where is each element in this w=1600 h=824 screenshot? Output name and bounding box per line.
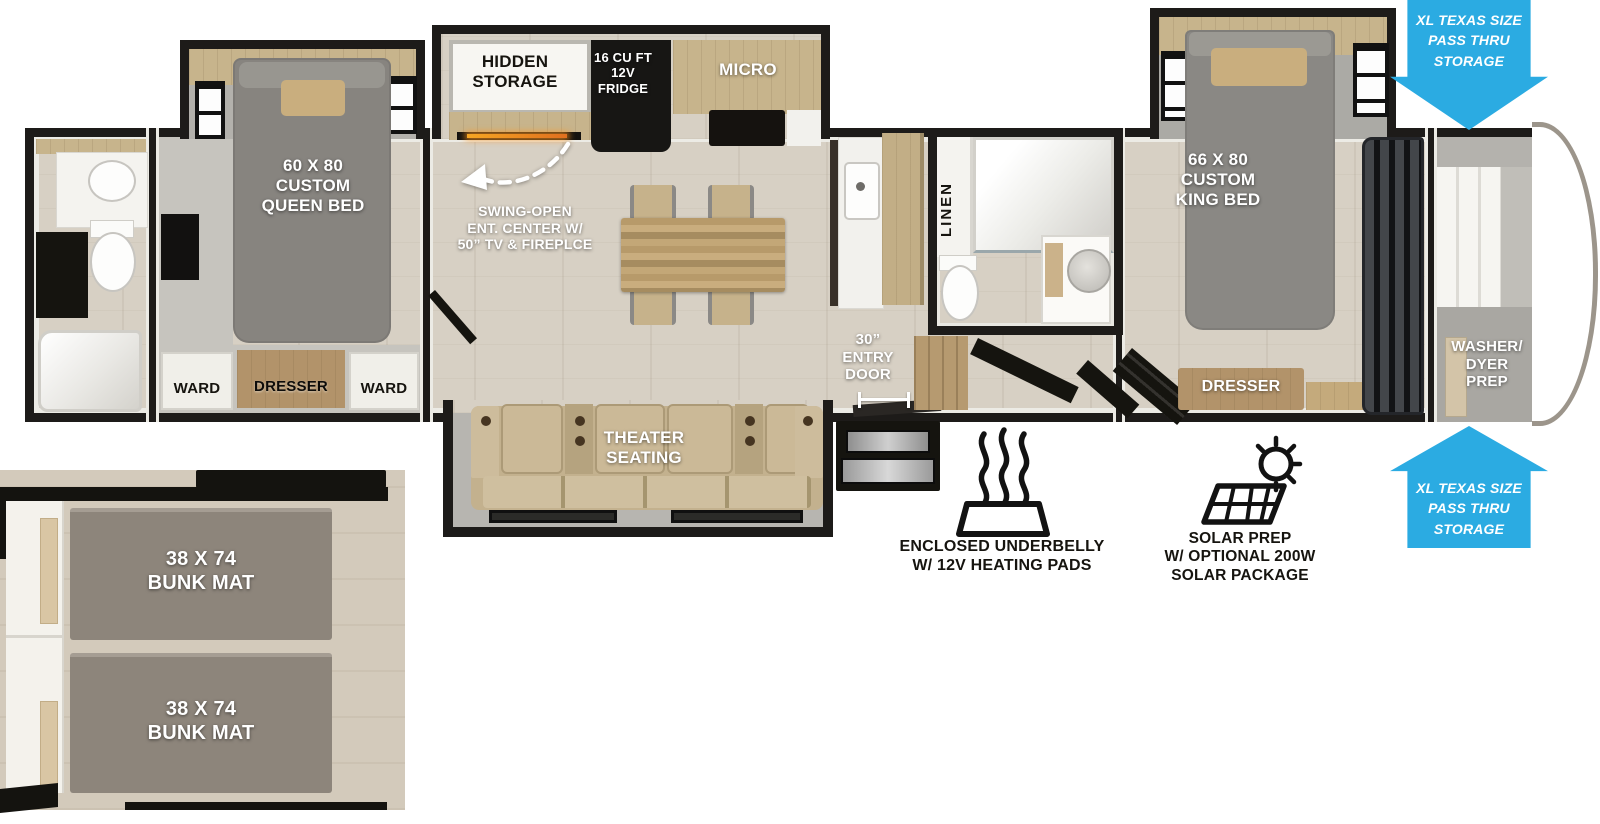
wall-bedroom-living xyxy=(420,128,433,422)
hidden-storage-label: HIDDEN STORAGE xyxy=(446,52,584,92)
cupholder-icon xyxy=(803,416,813,426)
dining-chair xyxy=(630,289,676,325)
theater-seating-label: THEATER SEATING xyxy=(583,428,705,468)
kitchen-sink-drain xyxy=(856,182,865,191)
kitchen-counter-dark-edge xyxy=(830,140,838,306)
bunk-cabinet-seam xyxy=(6,635,62,638)
bunk-mat-top-label: 38 X 74 BUNK MAT xyxy=(70,548,332,595)
entry-door-bracket xyxy=(858,392,910,408)
kitchen-sink xyxy=(844,162,880,220)
pass-thru-top-label: XL TEXAS SIZE PASS THRU STORAGE xyxy=(1390,10,1548,71)
queen-bed-pillow xyxy=(281,80,345,116)
mid-bath-toilet xyxy=(941,265,979,321)
solar-caption: SOLAR PREP W/ OPTIONAL 200W SOLAR PACKAG… xyxy=(1128,530,1352,585)
king-bench xyxy=(1306,382,1370,410)
bunk-cabinet-door xyxy=(40,701,58,795)
bunk-top-frame xyxy=(0,487,388,501)
swing-open-arrow-icon xyxy=(455,138,575,204)
washer-closet-cabinets xyxy=(1437,167,1501,307)
king-bed-pillow xyxy=(1211,48,1307,86)
entry-door-bracket-line xyxy=(861,398,907,401)
queen-ward-left-label: WARD xyxy=(161,380,233,398)
queen-slide-window-right-icon xyxy=(387,76,417,134)
rear-bath-sink xyxy=(88,160,136,202)
bunk-cabinet-column xyxy=(6,501,64,793)
bunk-bottom-frame xyxy=(125,802,387,810)
washer-closet-top-band xyxy=(1437,137,1537,167)
bunk-cabinet-door xyxy=(40,518,58,624)
pass-thru-arrow-down-icon: XL TEXAS SIZE PASS THRU STORAGE xyxy=(1390,0,1548,130)
cupholder-icon xyxy=(481,416,491,426)
entry-door-label: 30” ENTRY DOOR xyxy=(824,331,912,384)
king-wardrobe xyxy=(1362,137,1424,415)
theater-window-icon xyxy=(489,510,617,523)
wall-king-front xyxy=(1425,128,1437,422)
entry-step xyxy=(846,430,930,453)
cooktop xyxy=(709,110,785,146)
mid-bath-door xyxy=(914,336,968,410)
queen-slide-window-left-icon xyxy=(195,81,225,139)
pass-thru-bottom-label: XL TEXAS SIZE PASS THRU STORAGE xyxy=(1390,478,1548,539)
bunk-bottom-left-frame xyxy=(0,783,58,813)
rear-bath-wardrobe xyxy=(36,232,88,318)
rv-floorplan: 60 X 80 CUSTOM QUEEN BED WARD DRESSER WA… xyxy=(0,0,1600,824)
mid-bath-vanity-panel xyxy=(1045,243,1063,297)
bunk-room-inset: 38 X 74 BUNK MAT 38 X 74 BUNK MAT xyxy=(0,470,405,810)
dining-chair xyxy=(708,185,754,221)
pantry-cabinet xyxy=(882,133,924,305)
ent-center-note: SWING-OPEN ENT. CENTER W/ 50” TV & FIREP… xyxy=(436,203,614,253)
queen-bed-label: 60 X 80 CUSTOM QUEEN BED xyxy=(238,156,388,216)
heating-pads-icon xyxy=(942,426,1064,538)
mid-bath-sink-bowl xyxy=(1067,249,1111,293)
king-bed-label: 66 X 80 CUSTOM KING BED xyxy=(1138,150,1298,210)
sofa-seat-row xyxy=(483,476,811,508)
bunk-mat-bottom-label: 38 X 74 BUNK MAT xyxy=(70,698,332,745)
underbelly-caption: ENCLOSED UNDERBELLY W/ 12V HEATING PADS xyxy=(878,538,1126,576)
bunk-countertop xyxy=(196,470,386,488)
cupholder-icon xyxy=(745,436,755,446)
queen-room-tv xyxy=(161,214,199,280)
micro-label: MICRO xyxy=(700,60,796,80)
linen-label: LINEN xyxy=(938,150,964,270)
entry-steps xyxy=(836,421,940,491)
king-slide-window-right-icon xyxy=(1353,43,1389,117)
cupholder-icon xyxy=(745,416,755,426)
kitchen-slide-counter-white xyxy=(787,110,821,146)
queen-dresser-label: DRESSER xyxy=(237,378,345,396)
entry-step xyxy=(841,458,935,484)
dining-chair xyxy=(708,289,754,325)
theater-window-icon xyxy=(671,510,803,523)
washer-dryer-label: WASHER/ DYER PREP xyxy=(1437,338,1537,391)
king-dresser-label: DRESSER xyxy=(1178,378,1304,397)
queen-ward-right-label: WARD xyxy=(349,380,419,398)
solar-prep-icon xyxy=(1188,434,1304,534)
pass-thru-arrow-up-icon: XL TEXAS SIZE PASS THRU STORAGE xyxy=(1390,426,1548,548)
dining-table xyxy=(621,218,785,292)
fridge-label: 16 CU FT 12V FRIDGE xyxy=(584,50,662,96)
rear-bath-toilet xyxy=(90,232,136,292)
rear-bath-tub xyxy=(38,330,142,412)
cupholder-icon xyxy=(575,416,585,426)
theater-slideout xyxy=(443,400,833,537)
dining-chair xyxy=(630,185,676,221)
front-cap xyxy=(1532,122,1598,426)
sofa-back-cushion xyxy=(501,404,563,474)
